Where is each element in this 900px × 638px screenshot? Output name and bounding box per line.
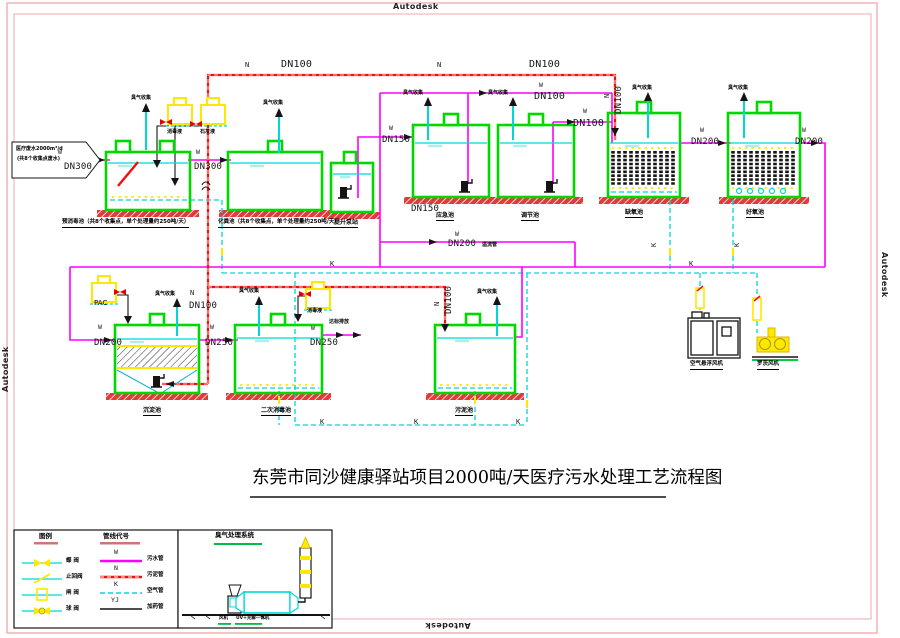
pipe-code-k: K xyxy=(734,243,741,247)
pipe-code-w: W xyxy=(311,325,315,332)
pipe-code-w: W xyxy=(389,125,393,132)
odor-label: 臭气收集 xyxy=(488,91,508,96)
pipe-dn250: DN250 xyxy=(310,339,338,348)
pipe-code-w: W xyxy=(455,231,459,238)
tank-label-septic: 化粪池（共8个收集点，单个处理量约250吨/天） xyxy=(218,220,340,228)
pipe-dn100: DN100 xyxy=(445,286,454,314)
pipe-code-w: W xyxy=(700,127,704,134)
pipe-code-k: K xyxy=(320,419,324,426)
watermark-right: Autodesk xyxy=(880,252,888,298)
pipe-dn150: DN150 xyxy=(411,205,439,214)
disinfectant-tank-label: 消毒液 xyxy=(167,130,182,135)
pipe-dn200: DN200 xyxy=(94,339,122,348)
pipe-dn100: DN100 xyxy=(573,119,604,129)
odor-label: 臭气收集 xyxy=(155,292,175,297)
legend-fan-label: 风机 xyxy=(219,617,228,622)
tank-label-lift-station: 提升泵站 xyxy=(334,220,358,228)
roots-blower-label: 罗茨风机 xyxy=(757,362,779,370)
air-suspension-blower-label: 空气悬浮风机 xyxy=(690,362,723,370)
legend-valve-gate: 闸 阀 xyxy=(66,591,79,597)
pipe-code-w: W xyxy=(196,149,200,156)
pipe-code-n: N xyxy=(190,290,194,297)
odor-label: 臭气收集 xyxy=(263,101,283,106)
tank-label-sedimentation: 沉淀池 xyxy=(143,408,161,416)
pipe-dn300: DN300 xyxy=(64,163,92,172)
pipe-code-w: W xyxy=(583,108,587,115)
tank-label-aerobic: 好氧池 xyxy=(746,210,764,218)
odor-label: 臭气收集 xyxy=(131,96,151,101)
roots-blower xyxy=(752,328,798,360)
odor-label: 臭气收集 xyxy=(632,86,652,91)
legend-uv-label: UV+光解一体机 xyxy=(236,617,269,622)
pipe-dn100: DN100 xyxy=(189,302,217,311)
watermark-top: Autodesk xyxy=(393,3,439,11)
legend-codes-title: 管线代号 xyxy=(103,533,129,540)
pipe-dn150: DN150 xyxy=(382,136,410,145)
pipe-dn100: DN100 xyxy=(281,60,312,70)
watermark-bottom: Autodesk xyxy=(425,621,471,629)
odor-label: 臭气收集 xyxy=(403,91,423,96)
pipe-code-n: N xyxy=(604,94,611,98)
air-accents xyxy=(222,248,733,408)
tank-label-secondary-disinfection: 二次消毒池 xyxy=(261,408,291,416)
disinfectant-tank-label: 消毒液 xyxy=(307,309,322,314)
legend-name-air: 空气管 xyxy=(147,589,164,595)
pipe-code-k: K xyxy=(651,243,658,247)
legend-name-sludge: 污泥管 xyxy=(147,573,164,579)
overflow-pipe-label: 溢流管 xyxy=(482,243,497,248)
pipe-dn200: DN200 xyxy=(691,138,719,147)
legend-name-dosing: 加药管 xyxy=(147,605,164,611)
pipe-code-n: N xyxy=(437,62,441,69)
legend-valve-ball: 球 阀 xyxy=(66,607,79,613)
tank-label-regulating: 调节池 xyxy=(521,213,539,221)
pipe-dn300: DN300 xyxy=(194,163,222,172)
drawing-canvas: Autodesk Autodesk Autodesk Autodesk 东莞市同… xyxy=(0,0,900,638)
odor-label: 臭气收集 xyxy=(239,289,259,294)
legend-name-sewage: 污水管 xyxy=(147,557,164,563)
air-suspension-blower xyxy=(688,312,740,358)
watermark-left: Autodesk xyxy=(2,346,10,392)
lamella-plates xyxy=(117,162,197,392)
discharge-label: 达标排放 xyxy=(329,320,349,325)
lime-tank-label: 石灰液 xyxy=(200,130,215,135)
pipe-code-n: N xyxy=(434,302,441,306)
pipe-code-k: K xyxy=(516,419,520,426)
legend-symbols-title: 图例 xyxy=(39,533,52,540)
drawing-title: 东莞市同沙健康驿站项目2000吨/天医疗污水处理工艺流程图 xyxy=(252,470,722,488)
pipe-code-n: N xyxy=(245,62,249,69)
pipe-code-w: W xyxy=(802,127,806,134)
inflow-note-line1: 医疗废水2000m³/d xyxy=(16,147,63,152)
odor-label: 臭气收集 xyxy=(477,290,497,295)
pipe-code-w: W xyxy=(539,82,543,89)
tank-label-pre-disinfection: 预消毒池（共8个收集点，单个处理量约250吨/天） xyxy=(62,220,189,228)
odor-label: 臭气收集 xyxy=(728,86,748,91)
pipe-code-w: W xyxy=(210,324,214,331)
tank-label-emergency: 应急池 xyxy=(436,213,454,221)
legend-valve-check: 止回阀 xyxy=(66,575,83,581)
legend-odor-title: 臭气处理系统 xyxy=(215,532,254,539)
pipe-code-k: K xyxy=(689,261,693,268)
pipe-code-k: K xyxy=(414,419,418,426)
pac-tank-label: PAC xyxy=(94,300,107,307)
legend-code-yj: YJ xyxy=(111,597,119,604)
pipe-dn200: DN200 xyxy=(795,138,823,147)
submersible-pumps xyxy=(151,179,557,387)
pipe-dn250: DN250 xyxy=(205,339,233,348)
tank-label-sludge: 污泥池 xyxy=(455,408,473,416)
inflow-note-line2: (共8个收集点废水) xyxy=(17,157,60,162)
pipe-code-w: W xyxy=(58,149,62,156)
pipe-dn200: DN200 xyxy=(448,240,476,249)
legend-code-k: K xyxy=(114,581,118,588)
legend-code-n: N xyxy=(114,565,118,572)
pipe-dn100: DN100 xyxy=(615,86,624,114)
tank-label-anoxic: 缺氧池 xyxy=(625,210,643,218)
pipe-code-w: W xyxy=(98,324,102,331)
pipe-dn100: DN100 xyxy=(534,92,565,102)
legend-code-w: W xyxy=(114,549,118,556)
pipe-code-k: K xyxy=(330,261,334,268)
pipe-dn100: DN100 xyxy=(529,60,560,70)
legend-valve-butterfly: 蝶 阀 xyxy=(66,559,79,565)
